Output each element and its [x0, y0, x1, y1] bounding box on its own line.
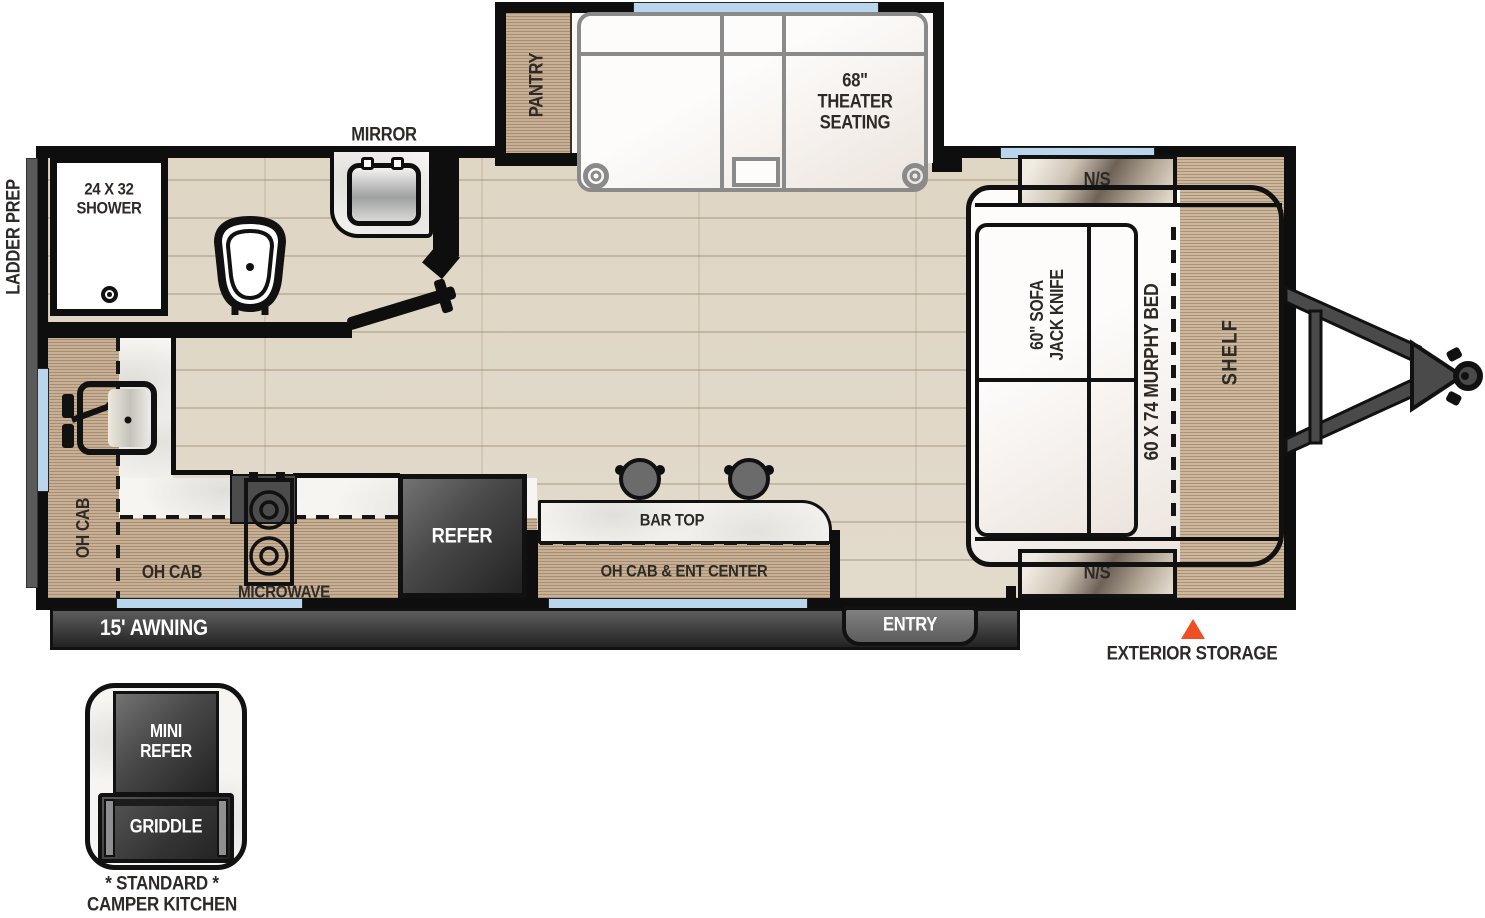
- oh-cab-left-label-wrap: OH CAB: [84, 528, 153, 548]
- shower-label-wrap: 24 X 32 SHOWER: [109, 199, 184, 237]
- bar-stool-icon-right: [728, 458, 770, 500]
- mini-refer-label: MINI REFER: [140, 722, 192, 762]
- theater-label-wrap: 68" THEATER SEATING: [855, 103, 941, 166]
- bar-top-label-wrap: BAR TOP: [672, 521, 746, 540]
- bar-stool-icon-left: [619, 458, 661, 500]
- refer-label-wrap: REFER: [462, 536, 532, 559]
- shower-label: 24 X 32 SHOWER: [77, 180, 142, 217]
- ladder-prep-label-wrap: LADDER PREP: [15, 237, 148, 258]
- awning-label: 15' AWNING: [100, 616, 208, 640]
- camper-kitchen-caption: * STANDARD * CAMPER KITCHEN: [87, 874, 237, 917]
- faucet-handle-icon-left: [361, 157, 374, 170]
- theater-back-line: [581, 52, 924, 56]
- cupholder-icon-left: [583, 163, 609, 189]
- refer-divider-wall: [527, 530, 538, 598]
- entry-label: ENTRY: [883, 616, 937, 637]
- ent-center-label: OH CAB & ENT CENTER: [601, 563, 768, 582]
- refer-label: REFER: [432, 524, 493, 547]
- murphy-bed-label: 60 X 74 MURPHY BED: [1141, 284, 1163, 461]
- entry-label-wrap: ENTRY: [910, 626, 972, 647]
- theater-console: [732, 157, 780, 187]
- theater-divider-left: [720, 16, 724, 188]
- wall-under-pantry: [495, 153, 581, 166]
- exterior-storage-arrow-icon: [1181, 619, 1205, 639]
- ladder-prep-bar: [26, 158, 38, 588]
- oh-cab-bottom-label: OH CAB: [142, 563, 202, 583]
- theater-divider-right: [782, 16, 786, 188]
- bar-dashed-line: [540, 541, 830, 545]
- exterior-storage-label-wrap: EXTERIOR STORAGE: [1192, 654, 1388, 675]
- theater-label: 68" THEATER SEATING: [817, 72, 892, 135]
- pantry-label: PANTRY: [528, 53, 549, 118]
- ent-center-label-wrap: OH CAB & ENT CENTER: [684, 572, 876, 591]
- bathroom-partition-wall: [433, 146, 459, 256]
- mini-refer-label-wrap: MINI REFER: [166, 742, 226, 782]
- bathroom-wall: [36, 322, 352, 338]
- cupholder-icon-right: [902, 163, 928, 189]
- shelf-label: SHELF: [1218, 319, 1241, 385]
- floorplan-canvas: PANTRY 68" THEATER SEATING 24 X 32 SHOWE…: [0, 0, 1485, 918]
- griddle-rail-left: [104, 799, 115, 857]
- wall-step-bedroom-bottom: [1006, 586, 1016, 608]
- camper-caption-wrap: * STANDARD * CAMPER KITCHEN: [162, 895, 334, 918]
- ent-center-wall: [830, 530, 840, 598]
- oh-cab-bottom-label-wrap: OH CAB: [172, 573, 241, 593]
- kitchen-side-window: [37, 368, 49, 492]
- faucet-handle-icon-right: [391, 157, 404, 170]
- griddle-top-bar: [115, 799, 217, 806]
- oh-cab-left-label: OH CAB: [74, 498, 94, 558]
- shower-drain-icon: [101, 286, 118, 303]
- griddle-label-wrap: GRIDDLE: [166, 828, 249, 849]
- bathroom-sink: [347, 163, 421, 226]
- toilet-icon: [206, 214, 294, 316]
- griddle-label: GRIDDLE: [130, 818, 203, 839]
- stove-icon: [243, 470, 295, 588]
- microwave-label: MICROWAVE: [238, 582, 330, 601]
- exterior-storage-label: EXTERIOR STORAGE: [1107, 643, 1278, 664]
- ladder-prep-label: LADDER PREP: [5, 179, 26, 295]
- awning-label-wrap: 15' AWNING: [100, 628, 222, 652]
- mirror-label: MIRROR: [351, 126, 416, 147]
- ns-bottom-label-wrap: N/S: [1097, 574, 1128, 595]
- kitchen-sink-icon: [58, 380, 158, 456]
- bar-top-label: BAR TOP: [640, 512, 704, 531]
- trailer-hitch-icon: [1284, 283, 1484, 473]
